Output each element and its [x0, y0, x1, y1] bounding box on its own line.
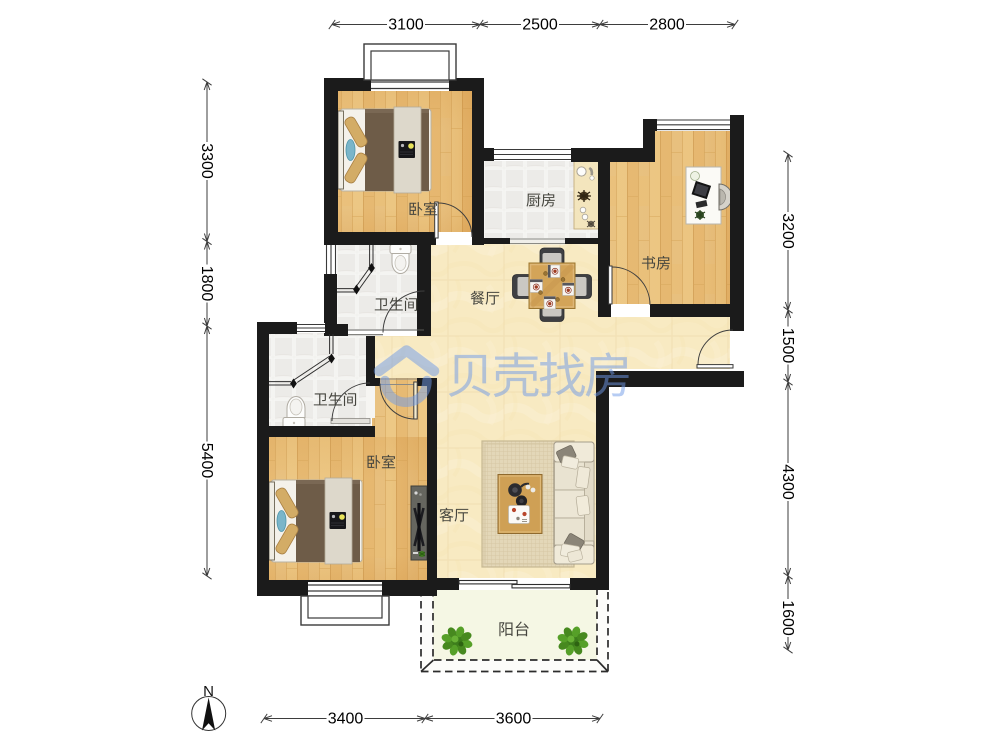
svg-text:3200: 3200 — [779, 213, 796, 249]
svg-text:2800: 2800 — [649, 16, 685, 33]
svg-text:3600: 3600 — [496, 710, 532, 727]
svg-text:3100: 3100 — [388, 16, 424, 33]
svg-text:1500: 1500 — [779, 328, 796, 364]
svg-text:N: N — [203, 683, 214, 700]
svg-text:3300: 3300 — [198, 143, 215, 179]
svg-text:3400: 3400 — [328, 710, 364, 727]
svg-text:1600: 1600 — [779, 600, 796, 636]
svg-text:1800: 1800 — [198, 266, 215, 302]
svg-text:2500: 2500 — [522, 16, 558, 33]
svg-text:5400: 5400 — [198, 443, 215, 479]
svg-text:4300: 4300 — [779, 464, 796, 500]
